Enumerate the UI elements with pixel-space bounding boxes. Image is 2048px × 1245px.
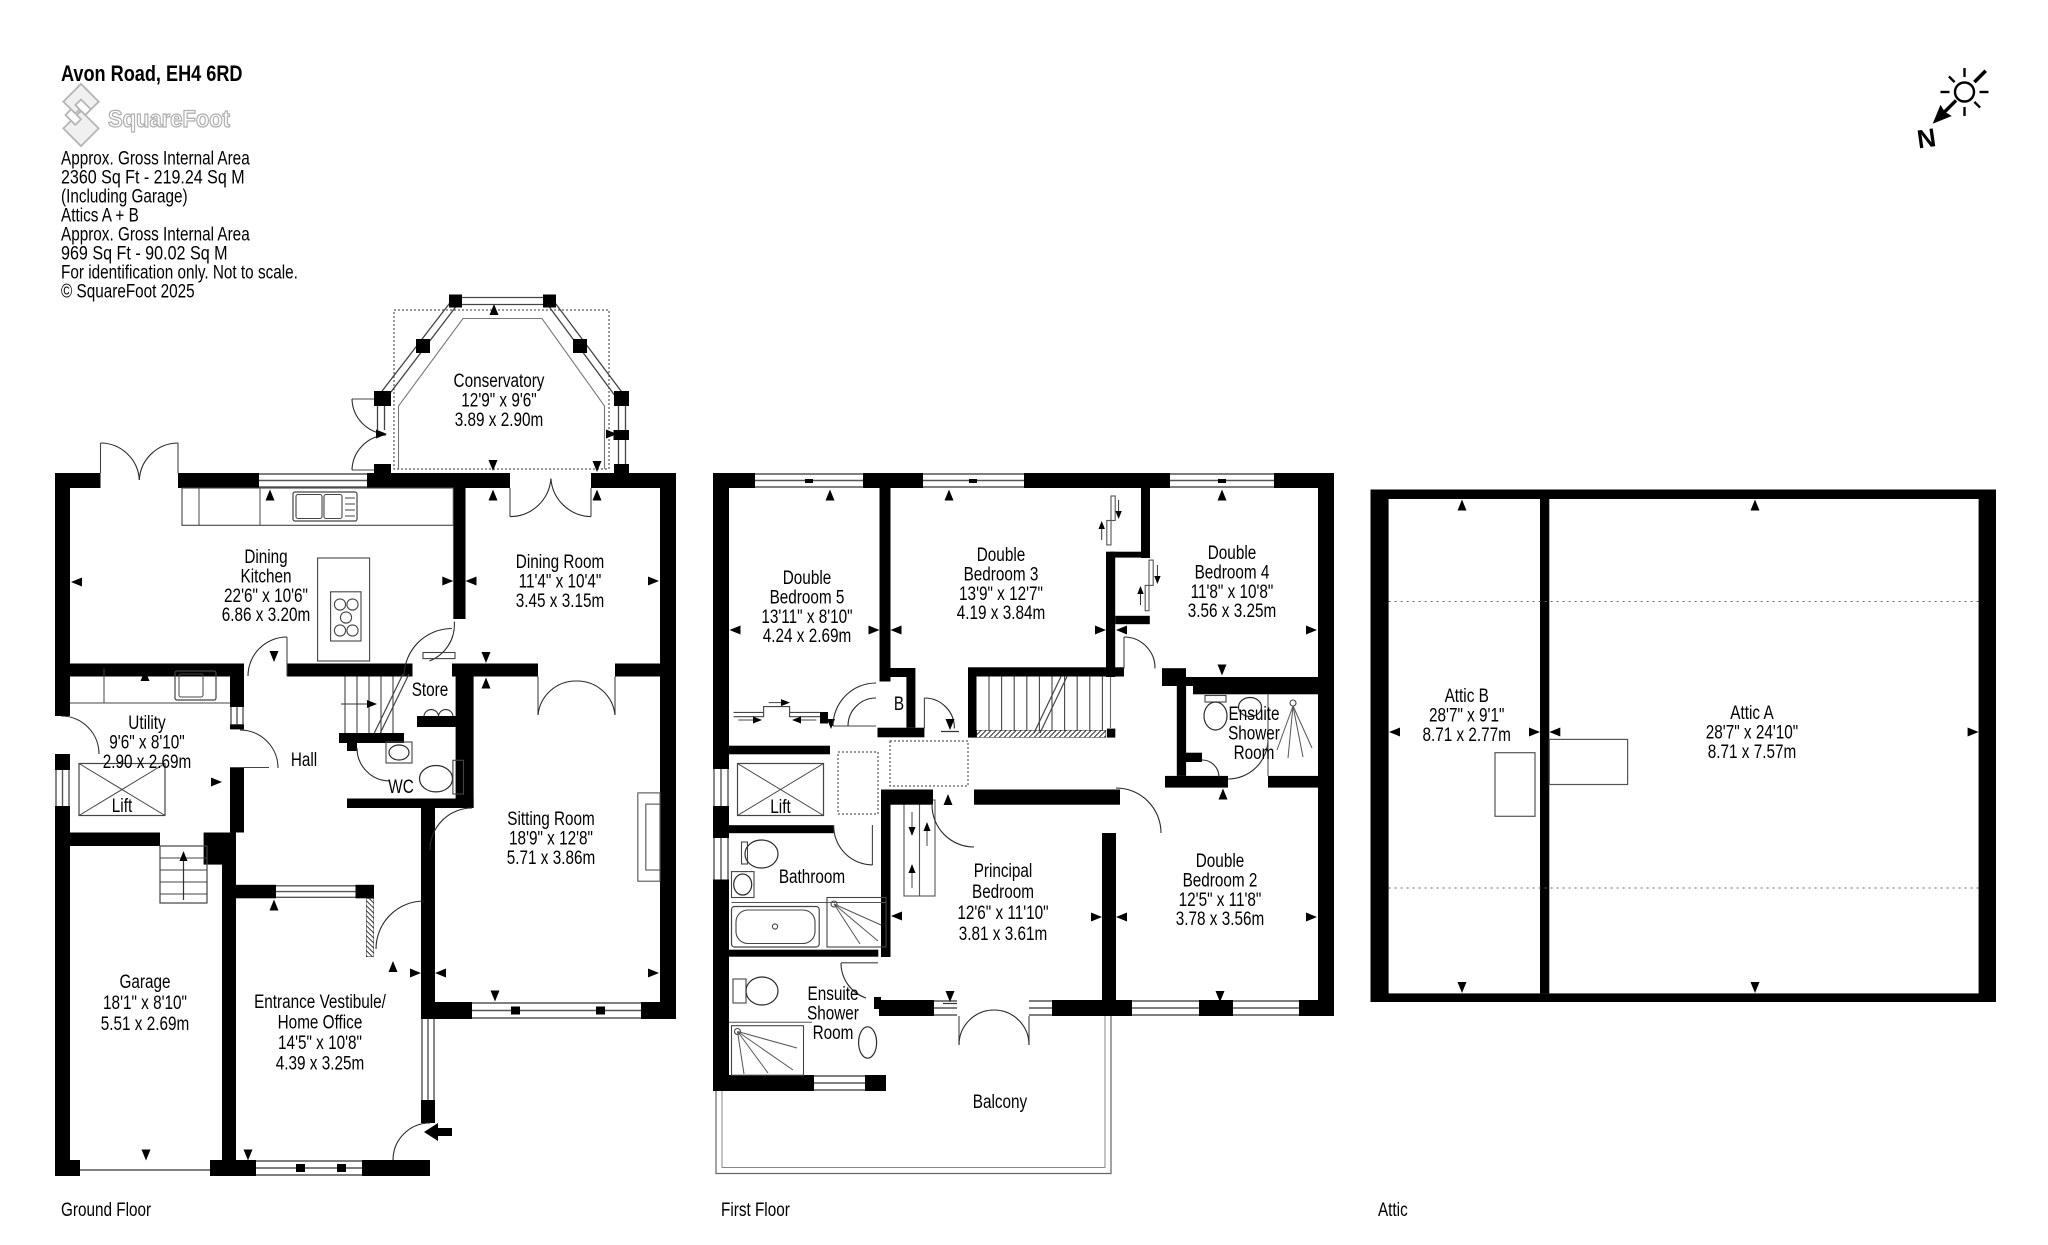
svg-text:Attic: Attic bbox=[1378, 1200, 1408, 1221]
svg-text:3.89 x 2.90m: 3.89 x 2.90m bbox=[455, 410, 543, 431]
svg-text:4.19 x 3.84m: 4.19 x 3.84m bbox=[957, 603, 1045, 624]
svg-text:8.71 x 2.77m: 8.71 x 2.77m bbox=[1423, 725, 1511, 746]
svg-text:Attic A: Attic A bbox=[1730, 703, 1774, 724]
svg-text:Sitting Room: Sitting Room bbox=[507, 809, 595, 830]
svg-text:Approx. Gross Internal Area: Approx. Gross Internal Area bbox=[61, 149, 250, 170]
svg-text:Attic B: Attic B bbox=[1445, 686, 1489, 707]
svg-text:B: B bbox=[894, 694, 904, 715]
svg-text:Shower: Shower bbox=[1228, 723, 1280, 744]
svg-text:Attics A + B: Attics A + B bbox=[61, 206, 139, 227]
svg-text:Conservatory: Conservatory bbox=[454, 371, 545, 392]
svg-text:(Including Garage): (Including Garage) bbox=[61, 187, 188, 208]
svg-text:6.86 x 3.20m: 6.86 x 3.20m bbox=[222, 605, 310, 626]
svg-text:Bedroom 4: Bedroom 4 bbox=[1195, 562, 1270, 583]
svg-text:Home Office: Home Office bbox=[278, 1013, 363, 1034]
svg-text:Kitchen: Kitchen bbox=[241, 566, 292, 587]
svg-text:Lift: Lift bbox=[770, 797, 791, 818]
svg-text:2360 Sq Ft - 219.24 Sq M: 2360 Sq Ft - 219.24 Sq M bbox=[61, 168, 245, 189]
svg-text:Room: Room bbox=[1234, 743, 1275, 764]
svg-text:28'7" x 9'1": 28'7" x 9'1" bbox=[1429, 705, 1504, 726]
svg-text:Approx. Gross Internal Area: Approx. Gross Internal Area bbox=[61, 225, 250, 246]
svg-text:13'11" x 8'10": 13'11" x 8'10" bbox=[761, 607, 852, 628]
svg-text:2.90 x 2.69m: 2.90 x 2.69m bbox=[103, 752, 191, 773]
svg-text:12'9" x 9'6": 12'9" x 9'6" bbox=[461, 390, 536, 411]
svg-text:Ensuite: Ensuite bbox=[808, 984, 859, 1005]
svg-text:3.56 x 3.25m: 3.56 x 3.25m bbox=[1188, 601, 1276, 622]
svg-text:Utility: Utility bbox=[128, 713, 166, 734]
svg-text:Balcony: Balcony bbox=[973, 1092, 1028, 1113]
svg-text:Hall: Hall bbox=[291, 750, 317, 771]
svg-text:Lift: Lift bbox=[112, 796, 133, 817]
svg-text:4.39 x 3.25m: 4.39 x 3.25m bbox=[276, 1054, 364, 1075]
svg-text:4.24 x 2.69m: 4.24 x 2.69m bbox=[763, 626, 851, 647]
svg-text:Bathroom: Bathroom bbox=[779, 867, 845, 888]
svg-text:11'4" x 10'4": 11'4" x 10'4" bbox=[519, 571, 602, 592]
svg-text:Double: Double bbox=[1196, 851, 1245, 872]
svg-text:Store: Store bbox=[412, 680, 449, 701]
svg-text:3.45 x 3.15m: 3.45 x 3.15m bbox=[516, 591, 604, 612]
svg-text:3.78 x 3.56m: 3.78 x 3.56m bbox=[1176, 909, 1264, 930]
svg-text:Room: Room bbox=[813, 1023, 854, 1044]
svg-text:Bedroom 3: Bedroom 3 bbox=[964, 564, 1039, 585]
svg-text:Principal: Principal bbox=[974, 861, 1033, 882]
svg-text:Avon Road, EH4 6RD: Avon Road, EH4 6RD bbox=[61, 61, 243, 86]
svg-text:969 Sq Ft - 90.02 Sq M: 969 Sq Ft - 90.02 Sq M bbox=[61, 244, 228, 265]
svg-text:14'5" x 10'8": 14'5" x 10'8" bbox=[278, 1033, 362, 1054]
svg-text:Double: Double bbox=[783, 568, 832, 589]
svg-text:WC: WC bbox=[388, 777, 414, 798]
svg-text:Ground Floor: Ground Floor bbox=[61, 1200, 152, 1221]
svg-text:First Floor: First Floor bbox=[721, 1200, 790, 1221]
svg-text:12'6" x 11'10": 12'6" x 11'10" bbox=[957, 903, 1048, 924]
svg-text:9'6" x 8'10": 9'6" x 8'10" bbox=[109, 732, 184, 753]
svg-text:5.51 x 2.69m: 5.51 x 2.69m bbox=[101, 1014, 189, 1035]
svg-text:Dining Room: Dining Room bbox=[516, 552, 604, 573]
svg-text:Bedroom 5: Bedroom 5 bbox=[770, 587, 845, 608]
svg-text:Dining: Dining bbox=[244, 547, 287, 568]
svg-text:Shower: Shower bbox=[807, 1003, 859, 1024]
svg-text:Garage: Garage bbox=[120, 972, 171, 993]
svg-text:Double: Double bbox=[1208, 543, 1257, 564]
svg-text:5.71 x 3.86m: 5.71 x 3.86m bbox=[507, 848, 595, 869]
svg-text:Entrance Vestibule/: Entrance Vestibule/ bbox=[254, 992, 386, 1013]
svg-text:8.71 x 7.57m: 8.71 x 7.57m bbox=[1708, 742, 1796, 763]
svg-text:© SquareFoot 2025: © SquareFoot 2025 bbox=[61, 282, 195, 303]
svg-text:22'6" x 10'6": 22'6" x 10'6" bbox=[224, 586, 308, 607]
svg-text:13'9" x 12'7": 13'9" x 12'7" bbox=[959, 584, 1043, 605]
svg-text:Double: Double bbox=[977, 545, 1026, 566]
svg-text:For identification only. Not t: For identification only. Not to scale. bbox=[61, 263, 298, 284]
svg-text:Bedroom: Bedroom bbox=[972, 882, 1034, 903]
svg-text:Bedroom 2: Bedroom 2 bbox=[1183, 870, 1258, 891]
svg-text:Ensuite: Ensuite bbox=[1229, 704, 1280, 725]
svg-text:18'1" x 8'10": 18'1" x 8'10" bbox=[103, 993, 187, 1014]
svg-text:18'9" x 12'8": 18'9" x 12'8" bbox=[509, 828, 593, 849]
svg-text:SquareFoot: SquareFoot bbox=[108, 106, 230, 133]
svg-text:12'5" x 11'8": 12'5" x 11'8" bbox=[1179, 890, 1262, 911]
svg-text:3.81 x 3.61m: 3.81 x 3.61m bbox=[959, 924, 1047, 945]
svg-text:28'7" x 24'10": 28'7" x 24'10" bbox=[1706, 722, 1798, 743]
svg-text:11'8" x 10'8": 11'8" x 10'8" bbox=[1191, 582, 1274, 603]
